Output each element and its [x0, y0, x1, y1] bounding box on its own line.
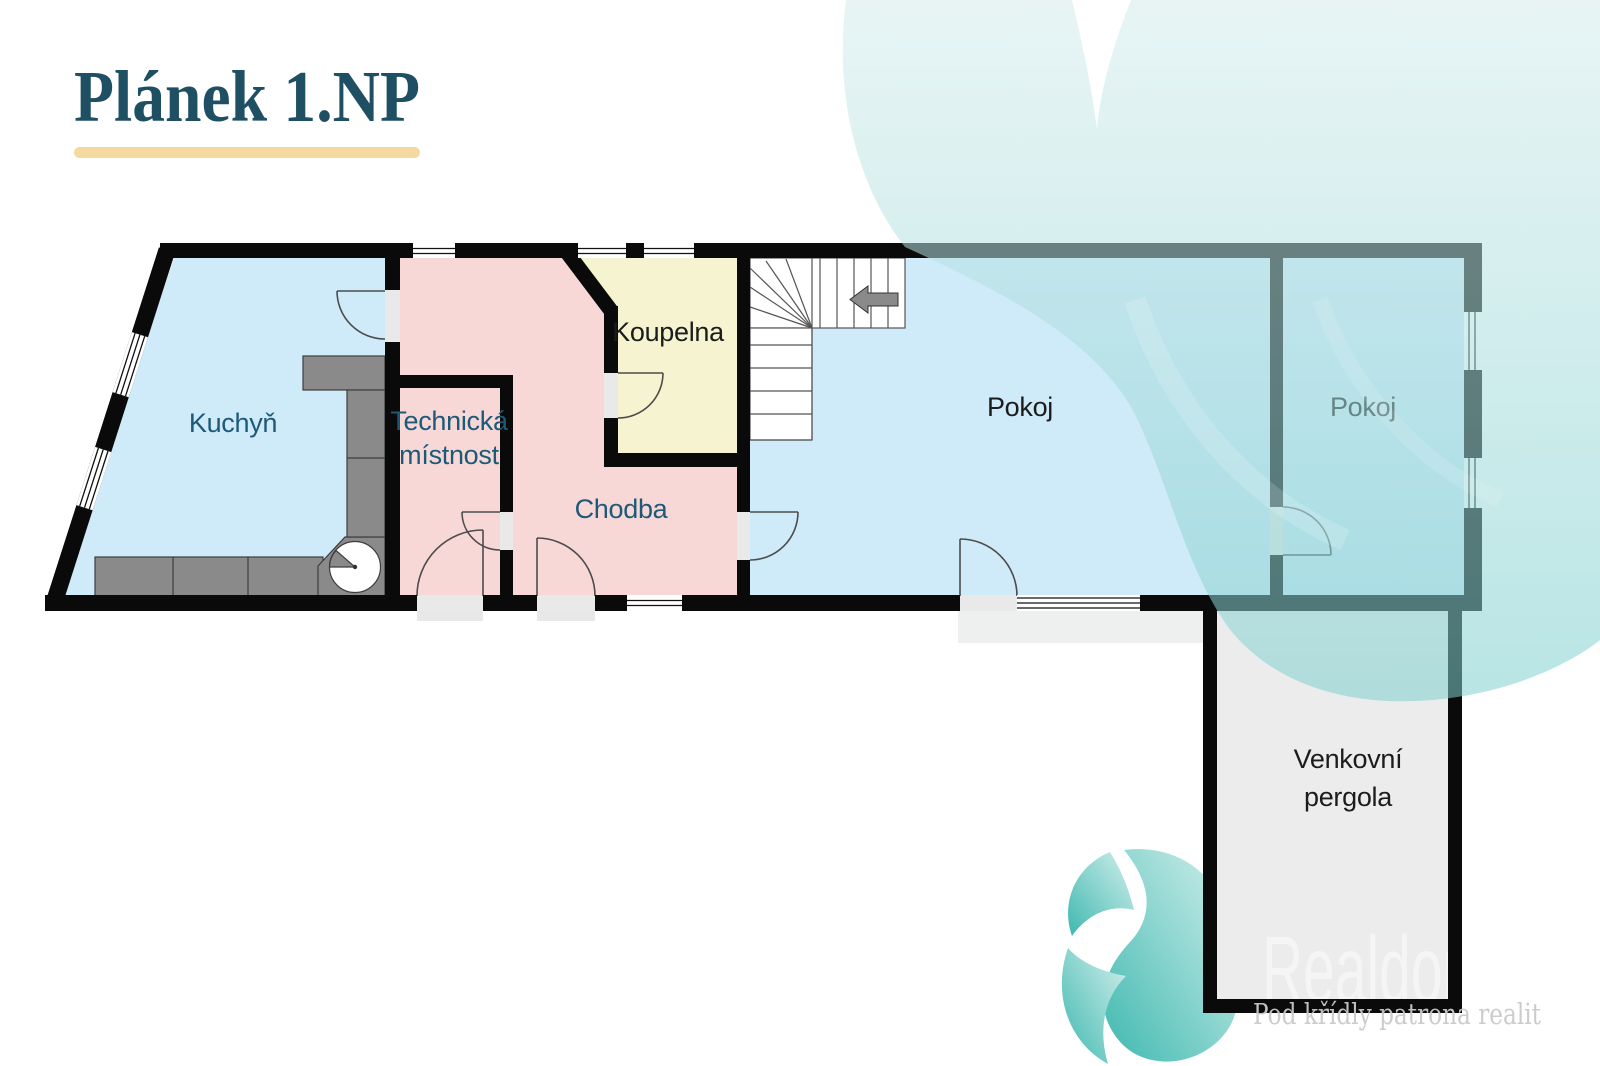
label-kuchyn: Kuchyň [189, 408, 277, 438]
window-glazed-wall [1017, 595, 1140, 611]
label-chodba: Chodba [575, 494, 669, 524]
floor-plan-canvas: Kuchyň Technická místnost Koupelna Chodb… [0, 0, 1600, 1066]
corner-carousel-icon [330, 542, 381, 593]
window-top-2 [578, 243, 626, 258]
page-title: Plánek 1.NP [74, 56, 420, 137]
threshold [537, 611, 595, 621]
label-pokoj-large: Pokoj [987, 392, 1053, 422]
watermark-tagline: Pod křídly patrona realit [1253, 997, 1541, 1031]
label-technicka-line2: místnost [399, 440, 499, 470]
page-title-group: Plánek 1.NP [74, 56, 420, 158]
window-top-3 [644, 243, 694, 258]
label-technicka-line1: Technická [390, 406, 509, 436]
window-top-1 [413, 243, 455, 258]
label-koupelna: Koupelna [612, 317, 725, 347]
window-bottom-1 [627, 595, 682, 611]
title-underline [74, 147, 420, 158]
watermark: Realdom Pod křídly patrona realit [1253, 917, 1541, 1031]
label-pergola-line2: pergola [1304, 782, 1393, 812]
patio [958, 611, 1203, 643]
threshold [417, 611, 483, 621]
label-pergola-line1: Venkovní [1294, 744, 1403, 774]
